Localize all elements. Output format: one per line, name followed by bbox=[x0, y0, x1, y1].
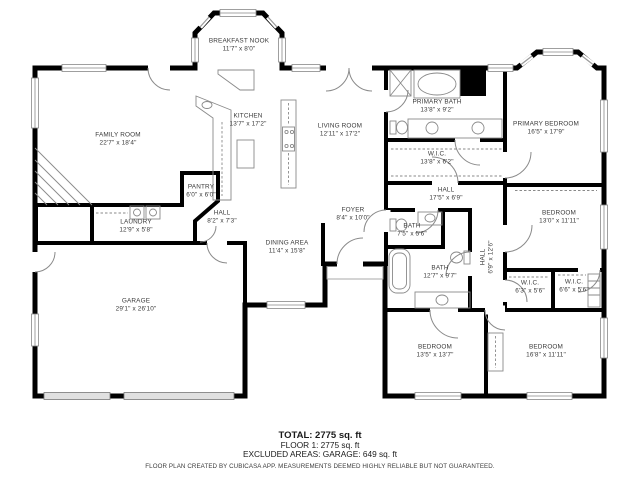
room-name: BATH bbox=[423, 264, 456, 272]
room-label-primary-bath: PRIMARY BATH13'8" x 9'2" bbox=[412, 98, 461, 113]
room-name: GARAGE bbox=[116, 297, 157, 305]
dryer bbox=[146, 206, 160, 219]
room-dims: 17'5" x 6'9" bbox=[429, 194, 462, 202]
kitchen-island bbox=[237, 140, 254, 168]
room-dims: 6'3" x 5'6" bbox=[515, 287, 545, 295]
room-label-family-room: FAMILY ROOM22'7" x 18'4" bbox=[95, 131, 140, 146]
room-name: W.I.C. bbox=[420, 150, 453, 158]
excluded-areas: EXCLUDED AREAS: GARAGE: 649 sq. ft bbox=[0, 450, 640, 459]
room-label-bedroom-bottom-right: BEDROOM16'8" x 11'11" bbox=[526, 343, 566, 358]
kitchen-sink bbox=[202, 102, 212, 109]
room-dims: 16'5" x 17'9" bbox=[513, 128, 579, 136]
room-name: BEDROOM bbox=[539, 209, 579, 217]
toilet bbox=[390, 121, 396, 134]
room-dims: 6'9" x 12'6" bbox=[487, 240, 495, 273]
kitchen-corner-cabinet bbox=[218, 70, 254, 90]
room-dims: 8'4" x 10'0" bbox=[336, 214, 369, 222]
room-label-hall-main: HALL17'5" x 6'9" bbox=[429, 186, 462, 201]
room-label-hall-center: HALL8'2" x 7'3" bbox=[207, 209, 237, 224]
room-name: LAUNDRY bbox=[119, 218, 152, 226]
room-name: HALL bbox=[479, 240, 487, 273]
room-label-wic-left: W.I.C.6'3" x 5'6" bbox=[515, 279, 545, 294]
room-dims: 7'5" x 5'6" bbox=[397, 230, 427, 238]
primary-vanity bbox=[408, 119, 502, 138]
room-name: PANTRY bbox=[186, 183, 216, 191]
room-dims: 12'11" x 17'2" bbox=[318, 130, 362, 138]
room-label-bath-small: BATH7'5" x 5'6" bbox=[397, 222, 427, 237]
room-label-breakfast-nook: BREAKFAST NOOK11'7" x 8'0" bbox=[209, 37, 269, 52]
room-label-bedroom-bottom-left: BEDROOM13'5" x 13'7" bbox=[417, 343, 454, 358]
room-name: BATH bbox=[397, 222, 427, 230]
summary: TOTAL: 2775 sq. ft FLOOR 1: 2775 sq. ft … bbox=[0, 431, 640, 470]
room-name: KITCHEN bbox=[230, 112, 267, 120]
room-label-living-room: LIVING ROOM12'11" x 17'2" bbox=[318, 122, 362, 137]
room-label-primary-bedroom: PRIMARY BEDROOM16'5" x 17'9" bbox=[513, 120, 579, 135]
room-name: HALL bbox=[207, 209, 237, 217]
room-dims: 13'8" x 9'2" bbox=[412, 106, 461, 114]
room-name: HALL bbox=[429, 186, 462, 194]
room-dims: 8'2" x 7'3" bbox=[207, 217, 237, 225]
room-name: BREAKFAST NOOK bbox=[209, 37, 269, 45]
room-dims: 12'9" x 5'8" bbox=[119, 226, 152, 234]
room-dims: 6'0" x 6'0" bbox=[186, 191, 216, 199]
room-name: FOYER bbox=[336, 206, 369, 214]
room-label-dining-area: DINING AREA11'4" x 15'8" bbox=[266, 239, 309, 254]
room-name: W.I.C. bbox=[515, 279, 545, 287]
room-label-pantry: PANTRY6'0" x 6'0" bbox=[186, 183, 216, 198]
room-name: W.I.C. bbox=[559, 278, 589, 286]
fireplace-hatch bbox=[35, 148, 92, 205]
room-label-wic-right: W.I.C.6'6" x 5'6" bbox=[559, 278, 589, 293]
room-dims: 12'7" x 9'7" bbox=[423, 272, 456, 280]
room-dims: 13'0" x 11'11" bbox=[539, 217, 579, 225]
room-dims: 22'7" x 18'4" bbox=[95, 139, 140, 147]
room-name: PRIMARY BEDROOM bbox=[513, 120, 579, 128]
room-dims: 11'7" x 8'0" bbox=[209, 45, 269, 53]
room-label-wic-primary: W.I.C.13'8" x 6'2" bbox=[420, 150, 453, 165]
room-dims: 29'1" x 26'10" bbox=[116, 305, 157, 313]
room-dims: 13'8" x 6'2" bbox=[420, 158, 453, 166]
room-name: PRIMARY BATH bbox=[412, 98, 461, 106]
room-name: DINING AREA bbox=[266, 239, 309, 247]
room-label-hall-bedrooms: HALL6'9" x 12'6" bbox=[479, 240, 494, 273]
washer bbox=[130, 206, 144, 219]
room-label-bedroom-right: BEDROOM13'0" x 11'11" bbox=[539, 209, 579, 224]
room-dims: 13'7" x 17'2" bbox=[230, 120, 267, 128]
disclaimer: FLOOR PLAN CREATED BY CUBICASA APP. MEAS… bbox=[0, 463, 640, 470]
room-name: BEDROOM bbox=[526, 343, 566, 351]
room-label-laundry: LAUNDRY12'9" x 5'8" bbox=[119, 218, 152, 233]
toilet bbox=[390, 219, 396, 231]
room-name: BEDROOM bbox=[417, 343, 454, 351]
room-label-foyer: FOYER8'4" x 10'0" bbox=[336, 206, 369, 221]
chimney-block bbox=[460, 68, 486, 96]
room-dims: 16'8" x 11'11" bbox=[526, 351, 566, 359]
primary-tub bbox=[414, 70, 460, 98]
room-label-garage: GARAGE29'1" x 26'10" bbox=[116, 297, 157, 312]
room-dims: 13'5" x 13'7" bbox=[417, 351, 454, 359]
floor-plan-drawing bbox=[0, 0, 640, 480]
garage-doors bbox=[44, 393, 234, 400]
room-name: FAMILY ROOM bbox=[95, 131, 140, 139]
room-label-bath-main: BATH12'7" x 9'7" bbox=[423, 264, 456, 279]
floor-plan-canvas: BREAKFAST NOOK11'7" x 8'0" FAMILY ROOM22… bbox=[0, 0, 640, 480]
room-name: LIVING ROOM bbox=[318, 122, 362, 130]
room-dims: 6'6" x 5'6" bbox=[559, 286, 589, 294]
room-label-kitchen: KITCHEN13'7" x 17'2" bbox=[230, 112, 267, 127]
room-dims: 11'4" x 15'8" bbox=[266, 247, 309, 255]
